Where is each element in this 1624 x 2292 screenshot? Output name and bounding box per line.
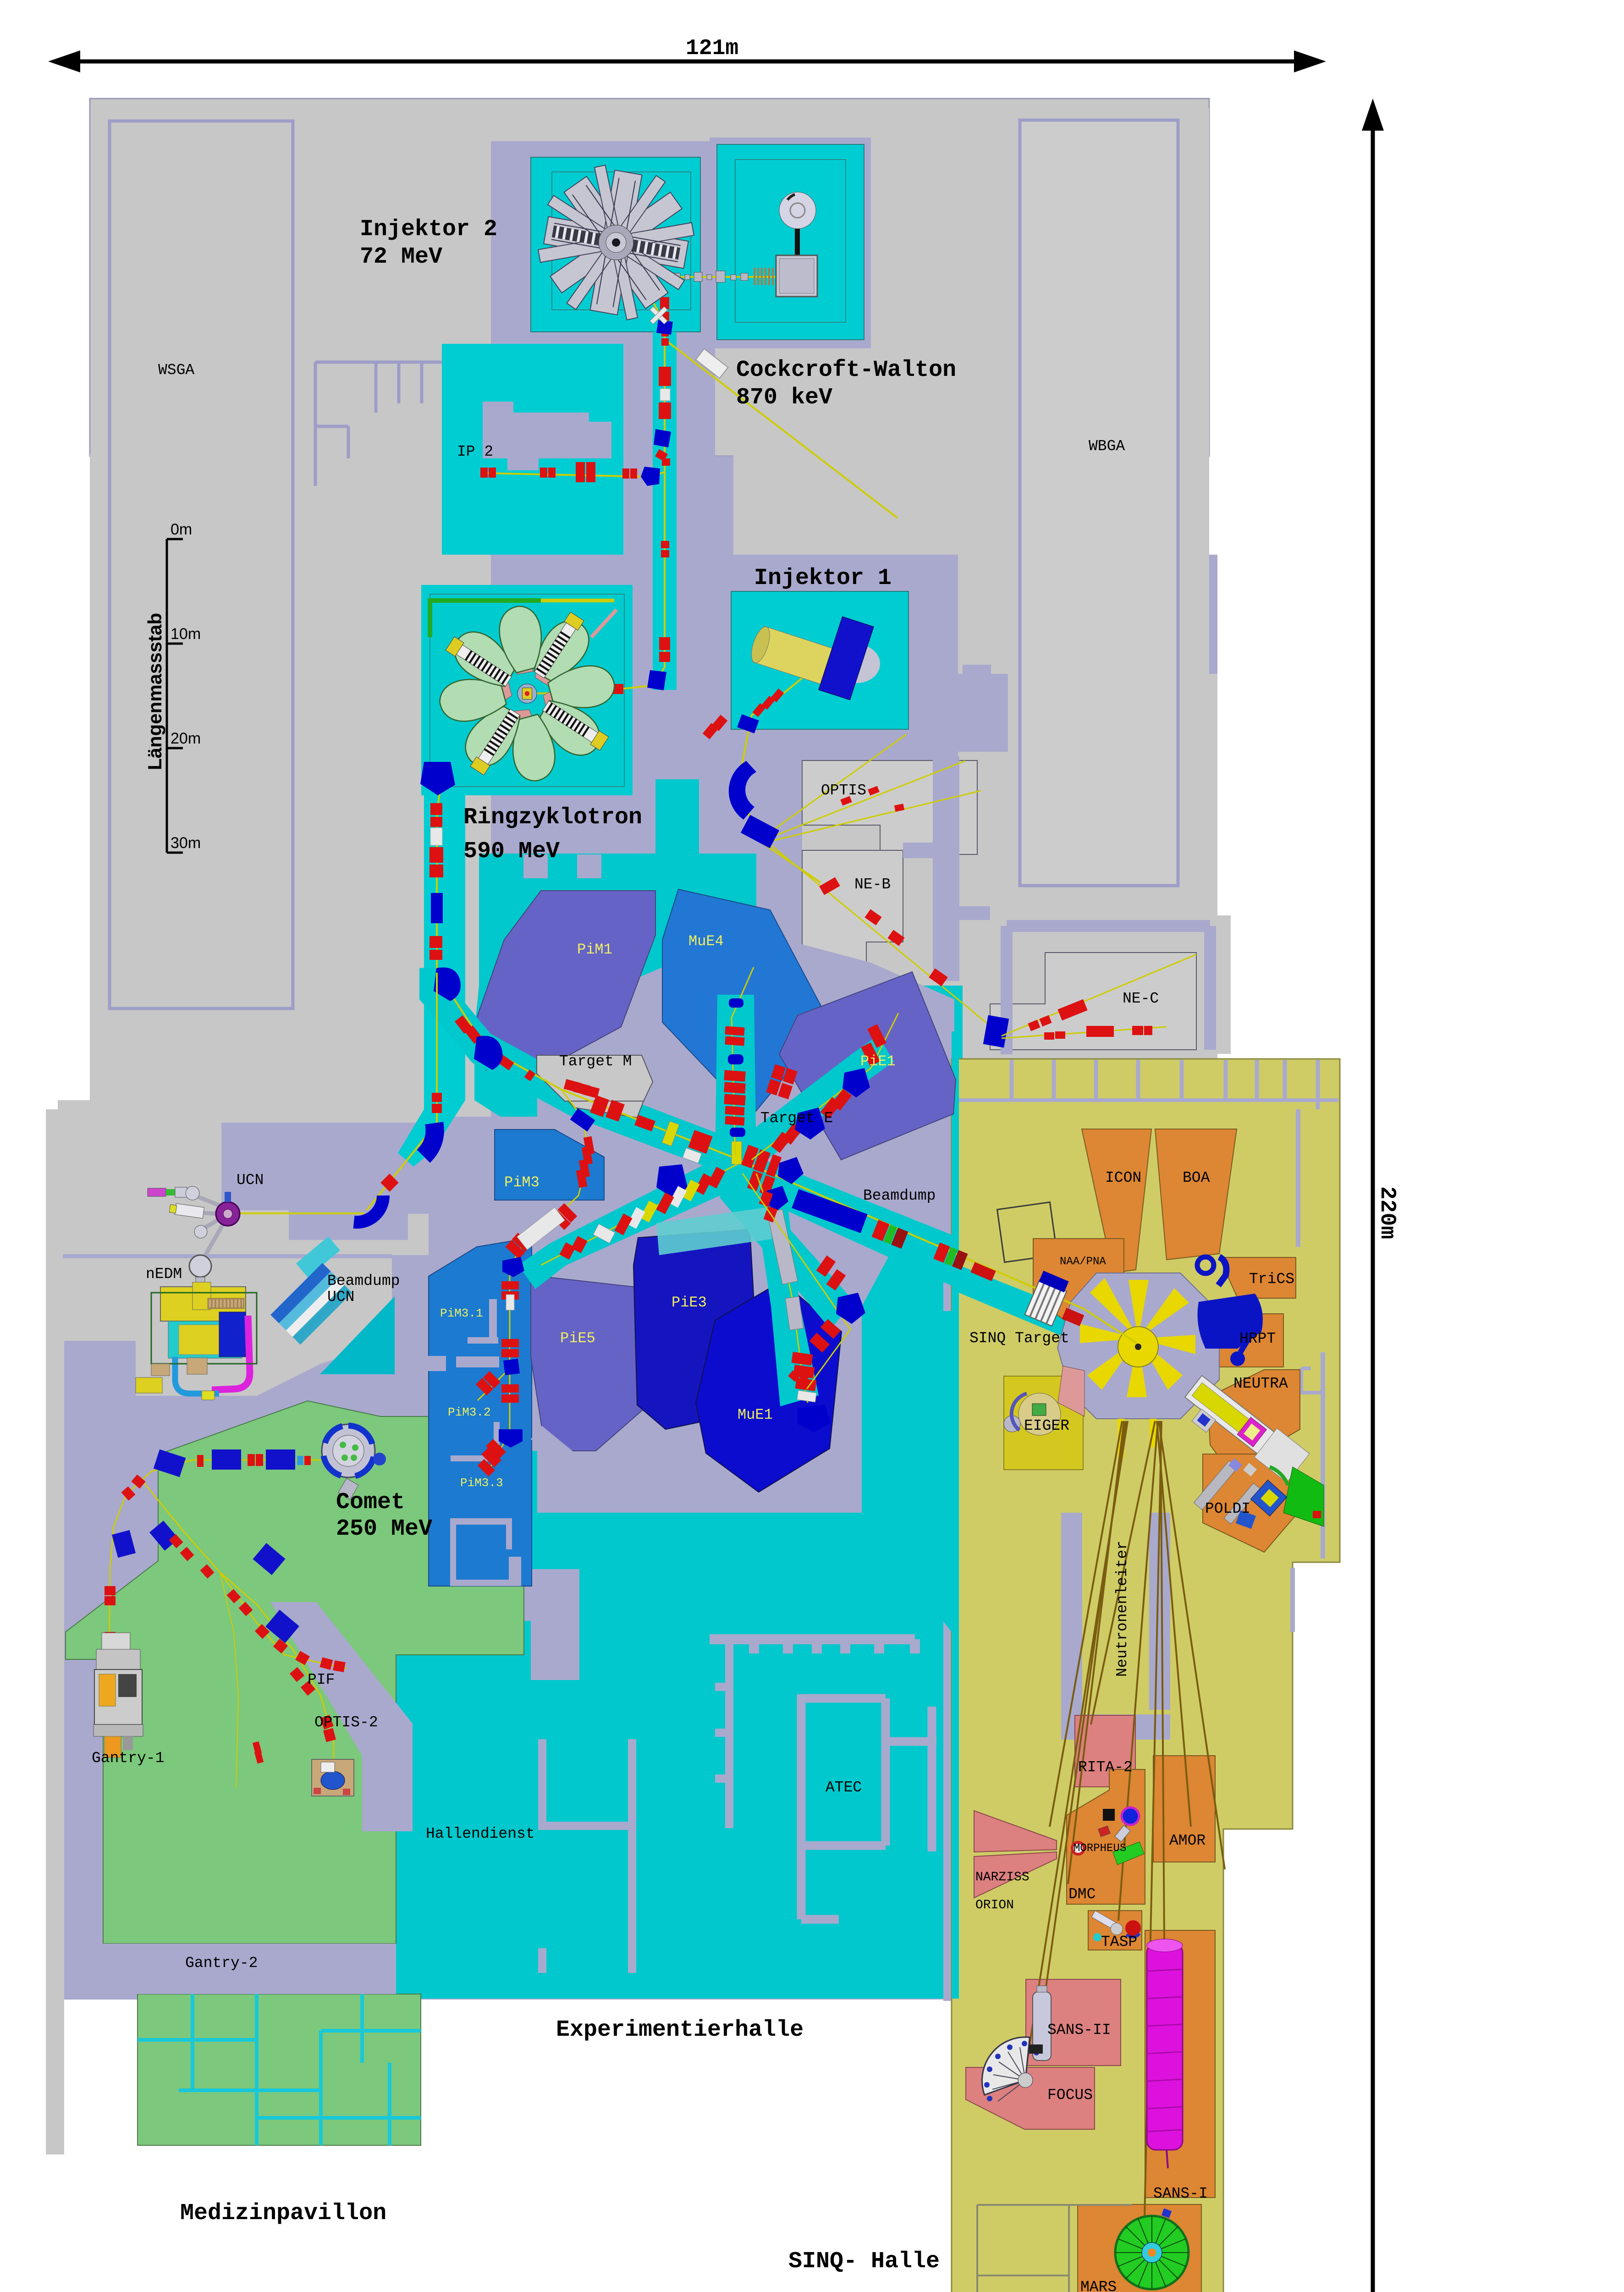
svg-text:PiE1: PiE1	[860, 1053, 896, 1070]
svg-text:POLDI: POLDI	[1205, 1500, 1250, 1517]
svg-text:Target M: Target M	[559, 1053, 632, 1070]
svg-text:870 keV: 870 keV	[736, 385, 832, 411]
svg-text:Experimentierhalle: Experimentierhalle	[556, 2017, 804, 2043]
svg-text:NE-C: NE-C	[1123, 990, 1159, 1007]
svg-text:BOA: BOA	[1183, 1169, 1210, 1186]
svg-text:OPTIS-2: OPTIS-2	[314, 1714, 378, 1731]
svg-text:RITA-2: RITA-2	[1078, 1759, 1133, 1776]
svg-text:PiM1: PiM1	[577, 941, 612, 958]
svg-text:MORPHEUS: MORPHEUS	[1073, 1842, 1126, 1855]
svg-text:SINQ Target: SINQ Target	[969, 1330, 1069, 1347]
svg-text:FOCUS: FOCUS	[1047, 2087, 1093, 2104]
svg-text:250 MeV: 250 MeV	[336, 1516, 432, 1542]
svg-text:WSGA: WSGA	[158, 362, 194, 379]
svg-text:590 MeV: 590 MeV	[463, 838, 560, 865]
svg-text:Beamdump: Beamdump	[863, 1187, 936, 1204]
svg-text:Beamdump: Beamdump	[327, 1273, 400, 1289]
svg-text:SINQ- Halle: SINQ- Halle	[788, 2248, 940, 2275]
svg-text:TASP: TASP	[1101, 1934, 1137, 1950]
svg-text:NAA/PNA: NAA/PNA	[1060, 1256, 1106, 1268]
svg-text:PiM3.3: PiM3.3	[460, 1476, 503, 1490]
svg-text:MARS: MARS	[1080, 2279, 1117, 2292]
svg-text:Gantry-1: Gantry-1	[92, 1750, 164, 1767]
svg-text:Cockcroft-Walton: Cockcroft-Walton	[736, 357, 956, 383]
svg-text:Injektor 2: Injektor 2	[360, 216, 497, 242]
svg-text:PiM3.2: PiM3.2	[448, 1405, 491, 1419]
svg-text:121m: 121m	[686, 36, 738, 61]
svg-text:Injektor 1: Injektor 1	[754, 565, 892, 591]
svg-text:PiM3: PiM3	[504, 1174, 539, 1191]
svg-text:UCN: UCN	[237, 1172, 264, 1189]
svg-text:Neutronenleiter: Neutronenleiter	[1114, 1541, 1131, 1677]
svg-text:Längenmassstab: Längenmassstab	[144, 613, 165, 770]
svg-text:20m: 20m	[171, 730, 201, 747]
svg-text:0m: 0m	[171, 521, 192, 538]
svg-text:MuE4: MuE4	[688, 933, 724, 950]
svg-text:DMC: DMC	[1068, 1886, 1096, 1903]
svg-text:AMOR: AMOR	[1169, 1832, 1206, 1849]
svg-text:ORION: ORION	[975, 1898, 1014, 1912]
svg-text:10m: 10m	[171, 625, 201, 643]
svg-text:ATEC: ATEC	[826, 1779, 862, 1796]
svg-text:nEDM: nEDM	[146, 1266, 182, 1283]
svg-text:Hallendienst: Hallendienst	[426, 1825, 535, 1842]
svg-text:72 MeV: 72 MeV	[360, 244, 442, 270]
svg-text:HRPT: HRPT	[1239, 1330, 1276, 1347]
svg-text:SANS-II: SANS-II	[1047, 2022, 1111, 2039]
svg-text:Target E: Target E	[760, 1110, 833, 1127]
svg-text:Ringzyklotron: Ringzyklotron	[463, 804, 642, 831]
svg-text:TriCS: TriCS	[1249, 1271, 1294, 1288]
svg-text:PiE5: PiE5	[560, 1330, 595, 1347]
svg-text:Medizinpavillon: Medizinpavillon	[180, 2200, 386, 2226]
svg-text:PiE3: PiE3	[672, 1294, 707, 1311]
svg-text:PIF: PIF	[308, 1671, 335, 1688]
svg-text:NEUTRA: NEUTRA	[1233, 1375, 1288, 1392]
svg-text:OPTIS: OPTIS	[821, 782, 866, 799]
svg-text:MuE1: MuE1	[738, 1406, 773, 1423]
svg-text:PiM3.1: PiM3.1	[440, 1306, 483, 1320]
svg-text:EIGER: EIGER	[1024, 1417, 1069, 1434]
svg-text:Gantry-2: Gantry-2	[185, 1955, 258, 1972]
svg-text:Comet: Comet	[336, 1489, 405, 1515]
svg-text:NARZISS: NARZISS	[975, 1870, 1029, 1884]
svg-text:NE-B: NE-B	[854, 876, 891, 893]
svg-text:ICON: ICON	[1105, 1169, 1141, 1186]
svg-text:UCN: UCN	[327, 1289, 354, 1306]
svg-text:220m: 220m	[1375, 1186, 1399, 1239]
svg-text:WBGA: WBGA	[1089, 438, 1125, 455]
svg-text:SANS-I: SANS-I	[1153, 2185, 1208, 2202]
svg-text:30m: 30m	[171, 834, 201, 852]
svg-text:IP 2: IP 2	[457, 443, 493, 460]
